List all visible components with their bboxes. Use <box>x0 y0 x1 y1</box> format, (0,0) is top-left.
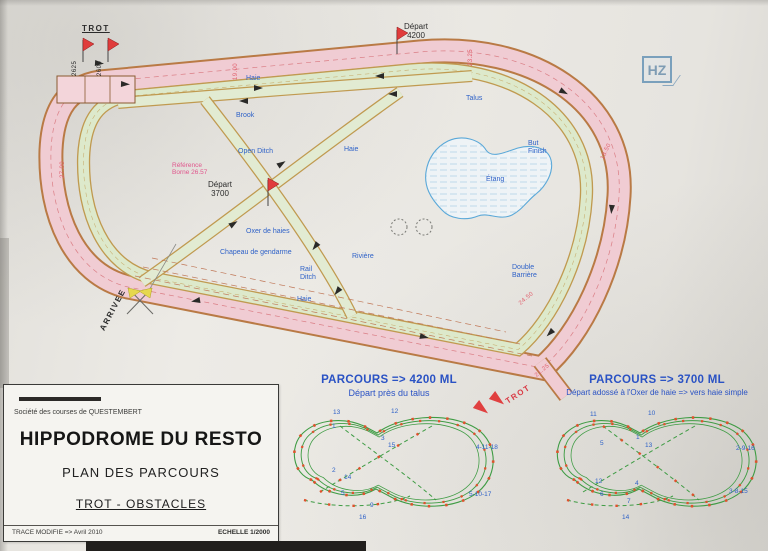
tree-icon <box>391 219 432 235</box>
page-title: HIPPODROME DU RESTO <box>4 429 278 451</box>
course-3700-subtitle: Départ adossé à l'Oxer de haie => vers h… <box>546 388 768 397</box>
course-3700-heading: PARCOURS => 3700 ML Départ adossé à l'Ox… <box>546 374 768 397</box>
mini-course-3700 <box>543 404 768 526</box>
lake <box>420 138 560 219</box>
title-block: Société des courses de QUESTEMBERT HIPPO… <box>3 384 279 542</box>
revision-note: TRACE MODIFIE => Avril 2010 <box>12 529 103 536</box>
mini-course-4200 <box>280 404 505 526</box>
course-3700-title: PARCOURS => 3700 ML <box>546 374 768 386</box>
scale-label: ECHELLE 1/2000 <box>218 529 270 536</box>
hz-stamp-icon: HZ <box>642 56 672 83</box>
scanned-hippodrome-plan: HaieTalusBrookOpen DitchHaieOxer de haie… <box>0 0 768 551</box>
page-subtitle: PLAN DES PARCOURS <box>4 465 278 480</box>
course-4200-title: PARCOURS => 4200 ML <box>283 374 495 386</box>
start-boxes <box>57 76 135 103</box>
discipline-label: TROT - OBSTACLES <box>4 497 278 511</box>
title-block-divider <box>4 525 278 526</box>
society-name: Société des courses de QUESTEMBERT <box>14 409 142 416</box>
course-4200-subtitle: Départ près du talus <box>283 388 495 398</box>
course-4200-heading: PARCOURS => 4200 ML Départ près du talus <box>283 374 495 398</box>
redacted-line <box>19 397 101 401</box>
scanner-edge-strip <box>86 541 366 551</box>
